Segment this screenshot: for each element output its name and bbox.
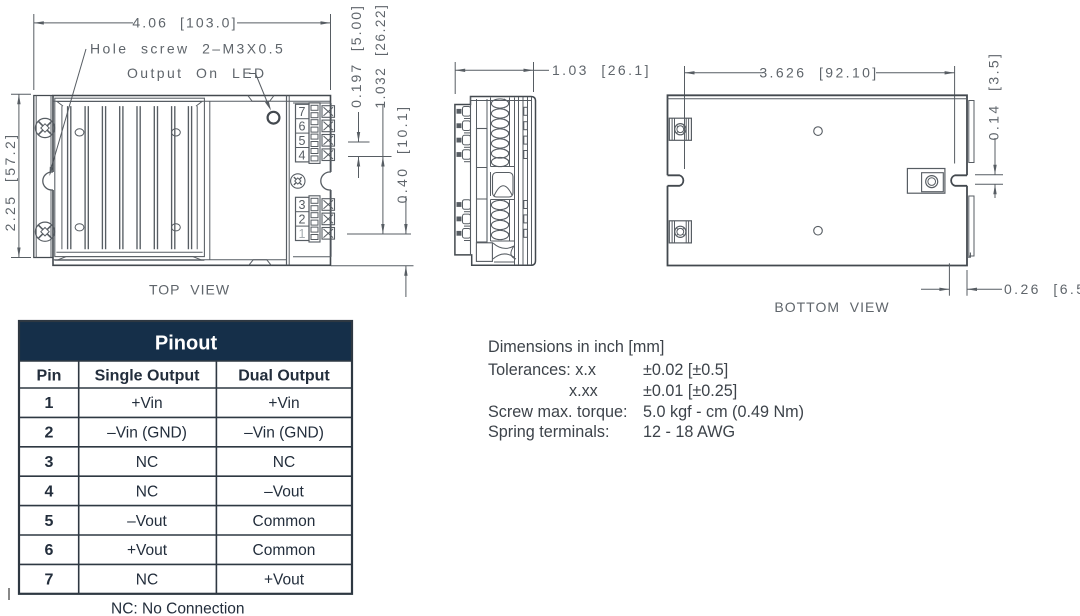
svg-text:3: 3: [45, 454, 54, 471]
svg-text:2: 2: [45, 425, 54, 442]
svg-text:Pinout: Pinout: [155, 333, 218, 355]
svg-text:–Vout: –Vout: [264, 483, 304, 500]
svg-text:±0.02 [±0.5]: ±0.02 [±0.5]: [643, 361, 728, 379]
svg-text:NC: NC: [136, 483, 158, 500]
svg-text:6: 6: [45, 542, 54, 559]
svg-text:NC: NC: [136, 454, 158, 471]
svg-text:1: 1: [45, 395, 54, 412]
svg-text:12 - 18 AWG: 12 - 18 AWG: [643, 423, 735, 441]
svg-text:TOP VIEW: TOP VIEW: [149, 282, 230, 298]
svg-text:Common: Common: [253, 542, 316, 559]
svg-text:5: 5: [45, 513, 54, 530]
svg-text:1: 1: [299, 227, 306, 241]
svg-text:Pin: Pin: [37, 368, 62, 385]
svg-text:2: 2: [299, 213, 306, 227]
svg-text:2.25 [57.2]: 2.25 [57.2]: [2, 133, 18, 232]
svg-text:Common: Common: [253, 513, 316, 530]
svg-text:Output On LED: Output On LED: [127, 65, 267, 81]
svg-text:Spring terminals:: Spring terminals:: [488, 423, 609, 441]
svg-text:1.032 [26.22]: 1.032 [26.22]: [373, 4, 388, 109]
svg-text:+Vout: +Vout: [264, 572, 305, 589]
svg-text:NC: No Connection: NC: No Connection: [111, 601, 245, 616]
svg-text:BOTTOM VIEW: BOTTOM VIEW: [774, 299, 889, 315]
svg-text:6: 6: [299, 120, 306, 134]
svg-text:0.14 [3.5]: 0.14 [3.5]: [986, 52, 1002, 141]
svg-text:7: 7: [299, 105, 306, 119]
svg-text:3: 3: [299, 198, 306, 212]
svg-text:5: 5: [299, 134, 306, 148]
svg-text:0.40 [10.1]: 0.40 [10.1]: [394, 105, 410, 204]
svg-text:+Vout: +Vout: [127, 542, 168, 559]
svg-text:–Vout: –Vout: [127, 513, 167, 530]
svg-text:NC: NC: [136, 572, 158, 589]
svg-text:Tolerances: x.x: Tolerances: x.x: [488, 361, 596, 379]
svg-text:+Vin: +Vin: [268, 395, 299, 412]
svg-text:0.26 [6.5]: 0.26 [6.5]: [1004, 281, 1080, 297]
svg-text:x.xx: x.xx: [569, 382, 598, 400]
svg-text:Dual Output: Dual Output: [238, 368, 330, 385]
svg-text:+Vin: +Vin: [131, 395, 162, 412]
svg-text:–Vin (GND): –Vin (GND): [244, 425, 324, 442]
svg-text:–Vin (GND): –Vin (GND): [107, 425, 187, 442]
svg-text:Hole screw 2–M3X0.5: Hole screw 2–M3X0.5: [90, 41, 285, 57]
svg-text:±0.01 [±0.25]: ±0.01 [±0.25]: [643, 382, 737, 400]
svg-text:3.626 [92.10]: 3.626 [92.10]: [759, 65, 878, 81]
svg-text:4.06 [103.0]: 4.06 [103.0]: [132, 15, 237, 31]
svg-text:4: 4: [299, 148, 306, 162]
svg-text:Screw max. torque:: Screw max. torque:: [488, 403, 627, 421]
svg-text:0.197 [5.00]: 0.197 [5.00]: [348, 4, 364, 108]
svg-text:NC: NC: [273, 454, 295, 471]
svg-text:4: 4: [45, 483, 54, 500]
svg-text:Single Output: Single Output: [95, 368, 201, 385]
svg-text:5.0 kgf - cm (0.49 Nm): 5.0 kgf - cm (0.49 Nm): [643, 403, 804, 421]
svg-text:7: 7: [45, 572, 54, 589]
svg-text:Dimensions in inch [mm]: Dimensions in inch [mm]: [488, 338, 664, 356]
svg-text:1.03 [26.1]: 1.03 [26.1]: [552, 62, 651, 78]
